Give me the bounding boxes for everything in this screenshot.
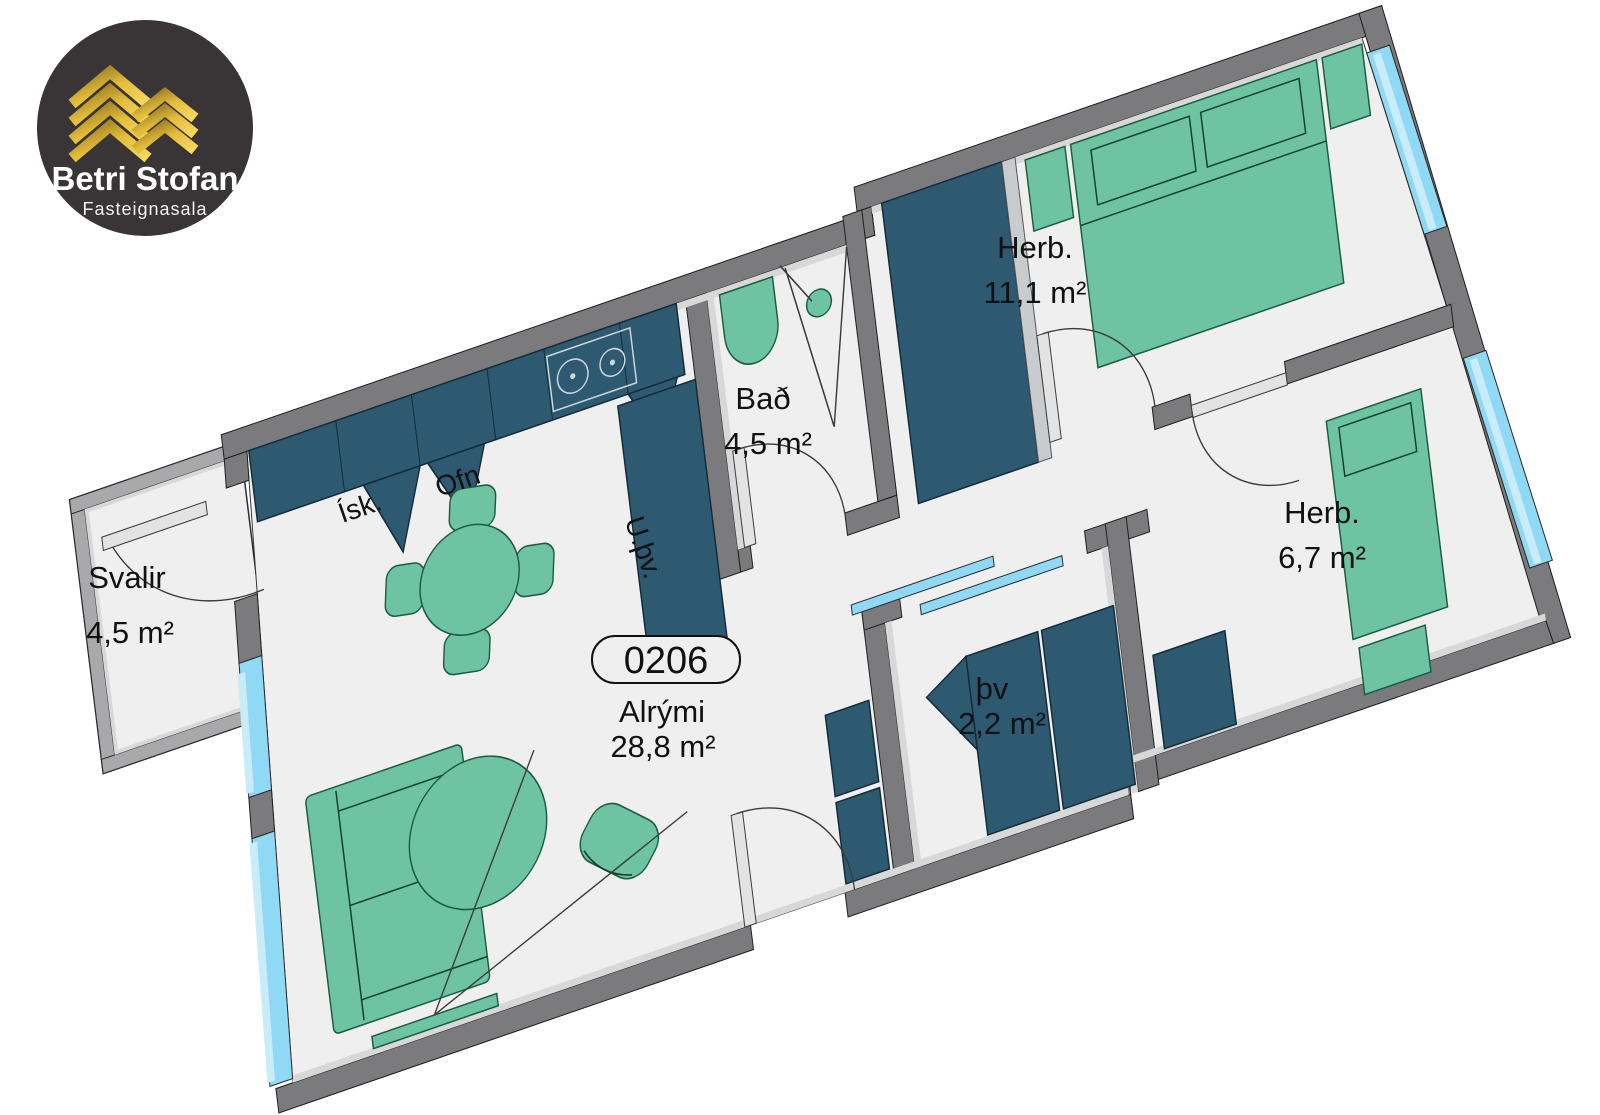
bath-area: 4,5 m² bbox=[724, 426, 812, 461]
living-name: Alrými bbox=[619, 694, 705, 729]
logo-subtitle: Fasteignasala bbox=[82, 199, 207, 219]
floorplan-page: Ísk. Ofn U.þv. Herb. 11,1 m² Herb. 6,7 m… bbox=[0, 0, 1600, 1115]
bedroom1-area: 11,1 m² bbox=[984, 275, 1087, 310]
logo-title: Betri Stofan bbox=[51, 160, 238, 197]
laundry-name: þv bbox=[976, 671, 1009, 706]
bath-name: Bað bbox=[735, 381, 790, 416]
laundry-area: 2,2 m² bbox=[958, 706, 1046, 741]
bedroom2-area: 6,7 m² bbox=[1278, 540, 1366, 575]
hall-cabinet-b bbox=[836, 788, 889, 884]
wall-bath-bottom-a bbox=[738, 546, 753, 573]
bedroom1-name: Herb. bbox=[997, 230, 1073, 265]
living-area: 28,8 m² bbox=[610, 729, 715, 764]
nightstand-left bbox=[1025, 146, 1073, 231]
bedroom2-name: Herb. bbox=[1284, 495, 1360, 530]
balcony-name: Svalir bbox=[88, 560, 166, 595]
hall-cabinet-a bbox=[825, 700, 878, 796]
floorplan-canvas: Ísk. Ofn U.þv. Herb. 11,1 m² Herb. 6,7 m… bbox=[0, 0, 1600, 1115]
nightstand-right bbox=[1322, 44, 1370, 129]
unit-badge-text: 0206 bbox=[624, 640, 709, 682]
realtor-logo: Betri Stofan Fasteignasala bbox=[37, 20, 253, 236]
balcony-area: 4,5 m² bbox=[86, 615, 174, 650]
